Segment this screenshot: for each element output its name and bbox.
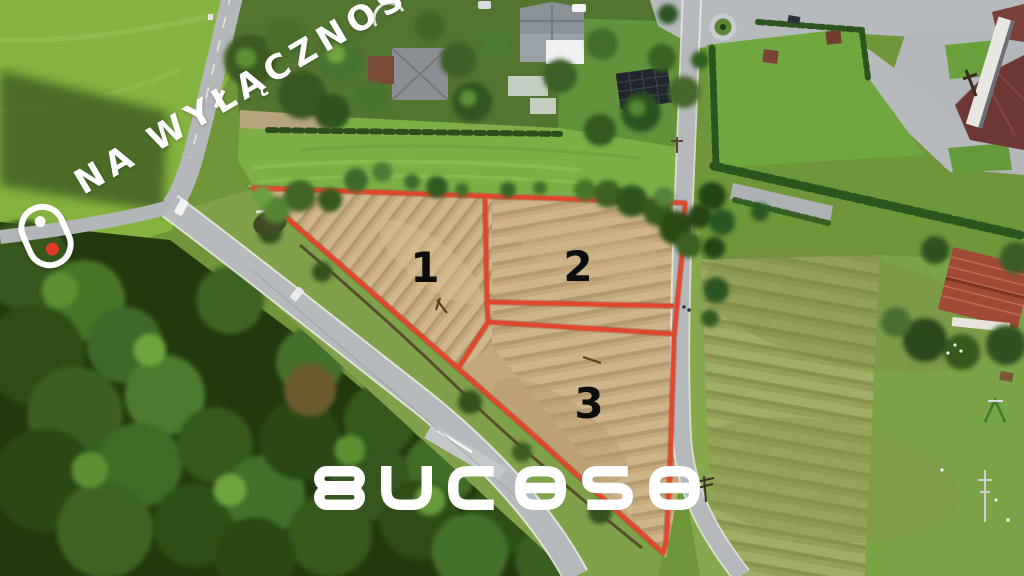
aerial-photo-scene [0, 0, 1024, 576]
aerial-photo-listing: NA WYŁĄCZNOŚĆ 1 2 3 Bucasa [0, 0, 1024, 576]
